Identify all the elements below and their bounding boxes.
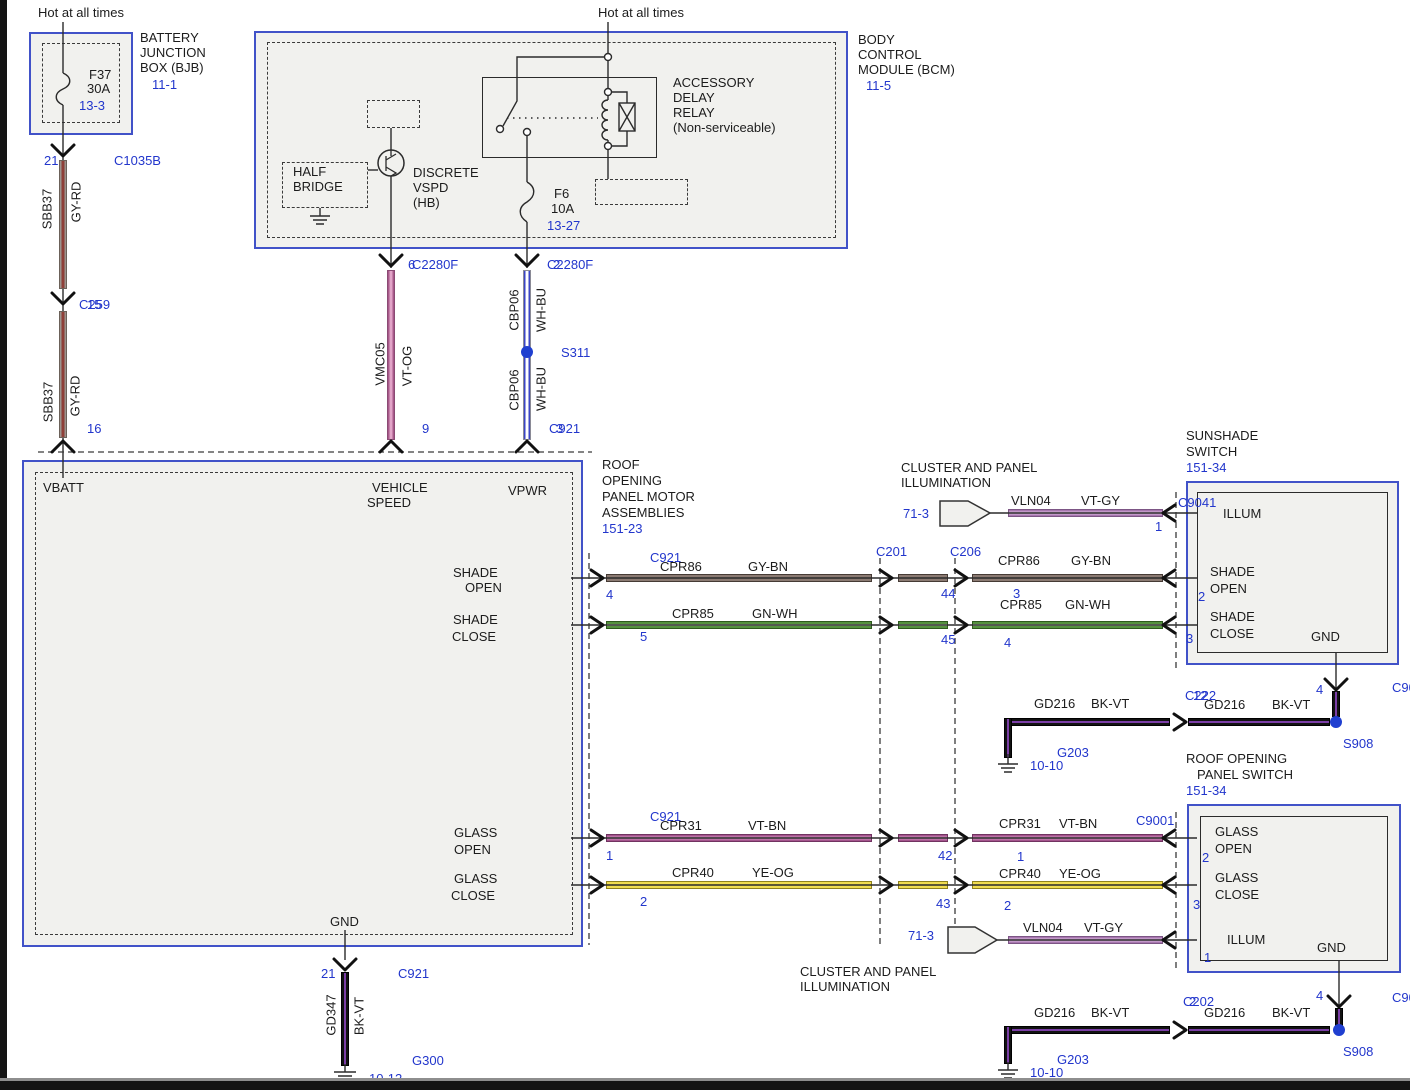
- wire-bkvt-3: BK-VT: [353, 997, 366, 1035]
- port-gnd-motor: GND: [330, 915, 359, 928]
- wire-whbu-2: WH-BU: [535, 367, 548, 411]
- wire-whbu-1: WH-BU: [535, 288, 548, 332]
- wire-cbp06-2: CBP06: [508, 369, 521, 410]
- wire-gd216-2a: GD216: [1204, 1006, 1245, 1019]
- sunshade-pin-1: 1: [1155, 520, 1162, 533]
- sunshade-shade-open-2: OPEN: [1210, 582, 1247, 595]
- wire-bkvt-2b: BK-VT: [1091, 1006, 1129, 1019]
- wiring-diagram-page: Hot at all timesHot at all timesBATTERYJ…: [0, 0, 1410, 1090]
- wire-gd216-1b: GD216: [1034, 697, 1075, 710]
- rops-glass-open-1: GLASS: [1215, 825, 1258, 838]
- offpage-ref-top: 71-3: [903, 507, 929, 520]
- cluster-bottom-1: CLUSTER AND PANEL: [800, 965, 936, 978]
- pin-1-right: 1: [1017, 850, 1024, 863]
- cluster-bottom-2: ILLUMINATION: [800, 980, 890, 993]
- conn-c9041: C9041: [1178, 496, 1216, 509]
- port-speed: SPEED: [367, 496, 411, 509]
- wire-cpr85-right: CPR85: [1000, 598, 1042, 611]
- pin-43: 43: [936, 897, 950, 910]
- wire-sbb37-2: SBB37: [42, 382, 55, 422]
- wire-bkvt-1a: BK-VT: [1272, 698, 1310, 711]
- window-border-bottom: [0, 1081, 1410, 1090]
- wire-gyrd-1: GY-RD: [70, 182, 83, 223]
- motor-name-4: ASSEMBLIES: [602, 506, 684, 519]
- wire-vtog: VT-OG: [401, 346, 414, 386]
- relay-name-2: DELAY: [673, 91, 715, 104]
- vspd-3: (HB): [413, 196, 440, 209]
- splice-s908-bottom: S908: [1343, 1045, 1373, 1058]
- pin-21-gnd: 21: [321, 967, 335, 980]
- wire-gd216-1a: GD216: [1204, 698, 1245, 711]
- wire-cpr86-right: CPR86: [998, 554, 1040, 567]
- sunshade-gnd: GND: [1311, 630, 1340, 643]
- wire-cbp06-1: CBP06: [508, 289, 521, 330]
- hot-times-left: Hot at all times: [38, 6, 124, 19]
- sunshade-ref: 151-34: [1186, 461, 1226, 474]
- vspd-1: DISCRETE: [413, 166, 479, 179]
- wire-yeog-right: YE-OG: [1059, 867, 1101, 880]
- conn-c9001: C9001: [1136, 814, 1174, 827]
- sunshade-shade-open-1: SHADE: [1210, 565, 1255, 578]
- port-vbatt: VBATT: [43, 481, 84, 494]
- wire-bkvt-2a: BK-VT: [1272, 1006, 1310, 1019]
- conn-c921-vpwr: C9213: [549, 422, 580, 435]
- wire-vmc05: VMC05: [374, 342, 387, 385]
- rops-glass-open-2: OPEN: [1215, 842, 1252, 855]
- wire-cpr40-right: CPR40: [999, 867, 1041, 880]
- rops-pin-2: 2: [1202, 851, 1209, 864]
- port-vehicle: VEHICLE: [372, 481, 428, 494]
- relay-name-1: ACCESSORY: [673, 76, 754, 89]
- wire-gybn-left: GY-BN: [748, 560, 788, 573]
- bcm-name-1: BODY: [858, 33, 895, 46]
- rops-pin-3: 3: [1193, 898, 1200, 911]
- port-shade-close-1: SHADE: [453, 613, 498, 626]
- wire-cpr85-left: CPR85: [672, 607, 714, 620]
- pin-2-right: 2: [1004, 899, 1011, 912]
- wire-gd216-2b: GD216: [1034, 1006, 1075, 1019]
- conn-c201: C201: [876, 545, 907, 558]
- port-glass-open-1: GLASS: [454, 826, 497, 839]
- pin-42: 42: [938, 849, 952, 862]
- offpage-ref-bottom: 71-3: [908, 929, 934, 942]
- conn-c259: C25915: [79, 298, 110, 311]
- rops-pin-1: 1: [1204, 951, 1211, 964]
- fuse-f37: F37: [89, 68, 111, 81]
- bjb-name-3: BOX (BJB): [140, 61, 204, 74]
- conn-c206: C206: [950, 545, 981, 558]
- motor-ref: 151-23: [602, 522, 642, 535]
- rops-illum: ILLUM: [1227, 933, 1265, 946]
- labels-layer: Hot at all timesHot at all timesBATTERYJ…: [0, 0, 1410, 1090]
- rops-name-2: PANEL SWITCH: [1197, 768, 1293, 781]
- rops-name-1: ROOF OPENING: [1186, 752, 1287, 765]
- bjb-name-1: BATTERY: [140, 31, 199, 44]
- wire-vtbn-left: VT-BN: [748, 819, 786, 832]
- port-glass-close-2: CLOSE: [451, 889, 495, 902]
- sunshade-pin-3: 3: [1186, 632, 1193, 645]
- rops-gnd: GND: [1317, 941, 1346, 954]
- sunshade-illum: ILLUM: [1223, 507, 1261, 520]
- port-shade-open-2: OPEN: [465, 581, 502, 594]
- wire-gd347: GD347: [325, 994, 338, 1035]
- fuse-f6: F6: [554, 187, 569, 200]
- wire-sbb37-1: SBB37: [41, 189, 54, 229]
- fuse-f37-rating: 30A: [87, 82, 110, 95]
- pin-16: 16: [87, 422, 101, 435]
- rops-ref: 151-34: [1186, 784, 1226, 797]
- bjb-ref: 11-1: [152, 78, 177, 91]
- pin-21: 21: [44, 154, 58, 167]
- bcm-name-3: MODULE (BCM): [858, 63, 955, 76]
- rops-glass-close-2: CLOSE: [1215, 888, 1259, 901]
- wire-cpr31-right: CPR31: [999, 817, 1041, 830]
- wire-cpr31-left: CPR31: [660, 819, 702, 832]
- sunshade-pin-2: 2: [1198, 590, 1205, 603]
- port-glass-close-1: GLASS: [454, 872, 497, 885]
- rops-pin-4: 4: [1316, 989, 1323, 1002]
- vspd-2: VSPD: [413, 181, 448, 194]
- sunshade-name-2: SWITCH: [1186, 445, 1237, 458]
- port-shade-open-1: SHADE: [453, 566, 498, 579]
- sunshade-pin-4: 4: [1316, 683, 1323, 696]
- conn-c1035b: C1035B: [114, 154, 161, 167]
- wire-bkvt-1b: BK-VT: [1091, 697, 1129, 710]
- port-shade-close-2: CLOSE: [452, 630, 496, 643]
- pin-44: 44: [941, 587, 955, 600]
- pin-2-left: 2: [640, 895, 647, 908]
- half-bridge-1: HALF: [293, 165, 326, 178]
- cluster-top-2: ILLUMINATION: [901, 476, 991, 489]
- wire-gnwh-left: GN-WH: [752, 607, 798, 620]
- wire-gnwh-right: GN-WH: [1065, 598, 1111, 611]
- ground-g300: G300: [412, 1054, 444, 1067]
- conn-c9041-clipped: C9041: [1392, 681, 1410, 694]
- conn-c921-gnd: C921: [398, 967, 429, 980]
- splice-s908-top: S908: [1343, 737, 1373, 750]
- port-vpwr: VPWR: [508, 484, 547, 497]
- pin-5-left: 5: [640, 630, 647, 643]
- bcm-name-2: CONTROL: [858, 48, 922, 61]
- wire-gyrd-2: GY-RD: [69, 376, 82, 417]
- port-glass-open-2: OPEN: [454, 843, 491, 856]
- wire-cpr40-left: CPR40: [672, 866, 714, 879]
- splice-s311: S311: [561, 346, 590, 359]
- wire-vtbn-right: VT-BN: [1059, 817, 1097, 830]
- pin-9: 9: [422, 422, 429, 435]
- wire-vln04-bottom: VLN04: [1023, 921, 1063, 934]
- bcm-ref: 11-5: [866, 79, 891, 92]
- fuse-f6-rating: 10A: [551, 202, 574, 215]
- fuse-f37-ref: 13-3: [79, 99, 105, 112]
- conn-c9001-clipped: C9001: [1392, 991, 1410, 1004]
- cluster-top-1: CLUSTER AND PANEL: [901, 461, 1037, 474]
- fuse-f6-ref: 13-27: [547, 219, 580, 232]
- half-bridge-2: BRIDGE: [293, 180, 343, 193]
- ground-g203-top-ref: 10-10: [1030, 759, 1063, 772]
- motor-name-3: PANEL MOTOR: [602, 490, 695, 503]
- relay-name-3: RELAY: [673, 106, 715, 119]
- pin-4-left: 4: [606, 588, 613, 601]
- sunshade-shade-close-2: CLOSE: [1210, 627, 1254, 640]
- bjb-name-2: JUNCTION: [140, 46, 206, 59]
- pin-45: 45: [941, 633, 955, 646]
- motor-name-1: ROOF: [602, 458, 640, 471]
- pin-4-right: 4: [1004, 636, 1011, 649]
- wire-gybn-right: GY-BN: [1071, 554, 1111, 567]
- wire-vtgy-bottom: VT-GY: [1084, 921, 1123, 934]
- pin-1-left: 1: [606, 849, 613, 862]
- wire-vln04-top: VLN04: [1011, 494, 1051, 507]
- wire-yeog-left: YE-OG: [752, 866, 794, 879]
- sunshade-shade-close-1: SHADE: [1210, 610, 1255, 623]
- hot-times-mid: Hot at all times: [598, 6, 684, 19]
- sunshade-name-1: SUNSHADE: [1186, 429, 1258, 442]
- conn-c2280f-left: C2280F6: [412, 258, 458, 271]
- relay-name-4: (Non-serviceable): [673, 121, 776, 134]
- rops-glass-close-1: GLASS: [1215, 871, 1258, 884]
- wire-vtgy-top: VT-GY: [1081, 494, 1120, 507]
- wire-cpr86-left: CPR86: [660, 560, 702, 573]
- conn-c2280f-right: C2280F2: [547, 258, 593, 271]
- window-border-left: [0, 0, 7, 1090]
- motor-name-2: OPENING: [602, 474, 662, 487]
